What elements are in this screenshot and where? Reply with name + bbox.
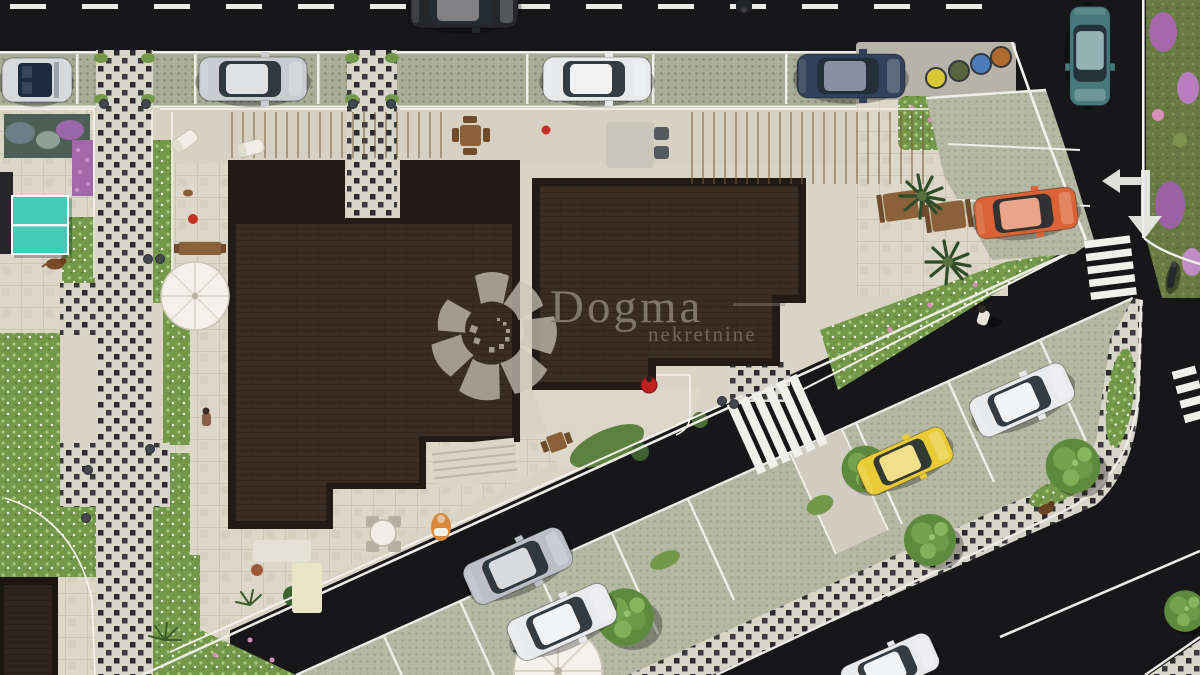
aerial-site-render: Dogma nekretnine <box>0 0 1200 675</box>
main-checkered-path <box>96 50 153 675</box>
car-silver-sedan <box>195 52 311 107</box>
building-entry-checkered-notch <box>347 160 397 216</box>
scooter-top-road <box>736 0 752 13</box>
blue-gray-shrub <box>5 122 35 144</box>
small-animal <box>183 190 193 197</box>
person-seated-terrace <box>431 513 451 541</box>
patio-chair-1 <box>654 127 669 140</box>
checkered-plaza-upper <box>60 283 153 335</box>
site-plan-svg: Dogma nekretnine <box>0 0 1200 675</box>
watermark-subtitle-text: nekretnine <box>648 322 757 346</box>
red-planter <box>542 126 551 135</box>
bin-orange <box>991 47 1011 67</box>
terrace-rug <box>253 540 311 562</box>
pale-shrub <box>36 131 60 149</box>
cream-lounge-mat <box>292 563 322 613</box>
patio-chair-2 <box>654 146 669 159</box>
outdoor-rug <box>606 122 654 168</box>
bin-green <box>949 61 969 81</box>
checkered-plaza-bulge <box>60 443 170 507</box>
southwest-building <box>0 577 58 675</box>
table-tennis-table <box>12 196 72 258</box>
round-patio-table-set <box>366 516 401 552</box>
car-teal-hatchback <box>1064 3 1115 110</box>
bin-blue <box>971 54 991 74</box>
bin-yellow <box>926 68 946 88</box>
terracotta-pot <box>251 564 263 576</box>
purple-flower-hedge <box>72 140 93 196</box>
car-convertible <box>0 58 74 107</box>
car-dark-blue-sedan <box>793 49 909 104</box>
patio-umbrella-large <box>161 262 229 330</box>
watermark-dash <box>733 303 785 306</box>
car-white-sedan <box>539 52 655 107</box>
west-garden-upper <box>0 333 60 445</box>
red-flower-pot <box>188 214 198 224</box>
wooden-bench <box>174 242 226 255</box>
stairs <box>431 438 518 488</box>
purple-shrub <box>56 120 84 140</box>
